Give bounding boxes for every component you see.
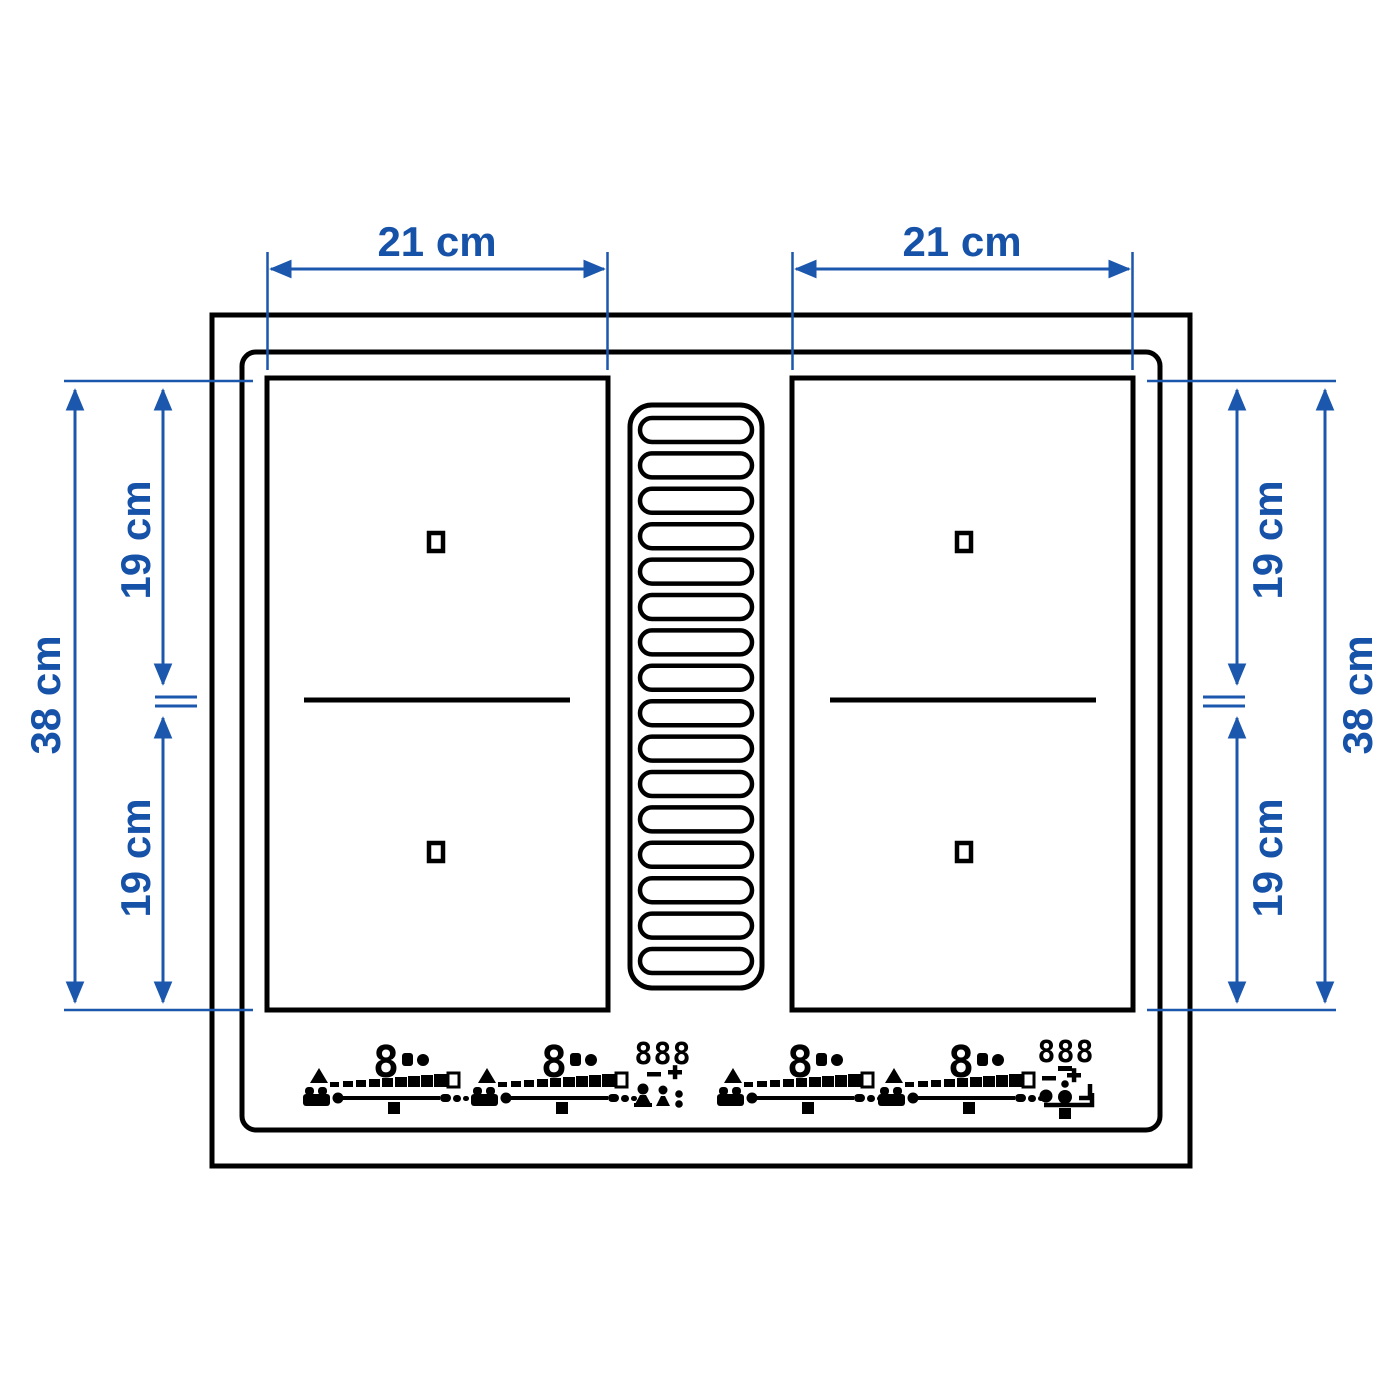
diagram-svg: 8 [0,0,1400,1400]
dim-left-zone-depths: 19 cm 19 cm [112,390,197,1002]
pause-square-icon [1059,1108,1071,1119]
minus-icon [647,1072,661,1077]
minus-icon [1042,1076,1056,1081]
hob-dimension-diagram: 8 [0,0,1400,1400]
dim-label-right-total-depth: 38 cm [1334,635,1381,754]
dim-label-right-upper-zone-depth: 19 cm [1244,480,1291,599]
right-cooking-zone [792,378,1133,1010]
dim-label-right-zone-width: 21 cm [902,218,1021,265]
dim-label-right-lower-zone-depth: 19 cm [1244,798,1291,917]
dim-label-left-zone-width: 21 cm [377,218,496,265]
dim-left-total-depth: 38 cm [22,390,75,1002]
dim-right-zone-depths: 19 cm 19 cm [1203,390,1291,1002]
dim-right-total-depth: 38 cm [1325,390,1381,1002]
dim-label-left-upper-zone-depth: 19 cm [112,480,159,599]
fan-display: 888 [1037,1035,1094,1070]
dim-label-left-total-depth: 38 cm [22,635,69,754]
left-cooking-zone [267,378,608,1010]
center-display: 888 [634,1037,691,1072]
fan-pause-bar-icon [1058,1066,1072,1071]
dim-label-left-lower-zone-depth: 19 cm [112,798,159,917]
extractor-vent [630,405,762,988]
fan-circle-icon [1040,1090,1053,1103]
